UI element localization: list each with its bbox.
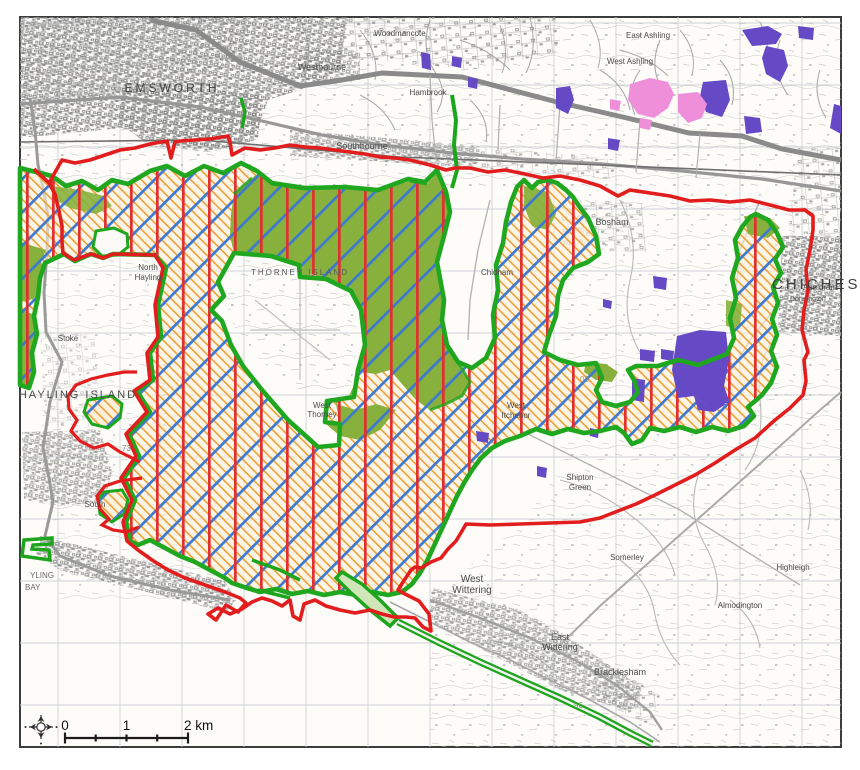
svg-text:West: West bbox=[313, 401, 332, 410]
svg-text:96: 96 bbox=[574, 701, 583, 710]
svg-text:East: East bbox=[551, 632, 570, 642]
svg-text:Southbourne: Southbourne bbox=[336, 141, 388, 151]
svg-text:Apuldram: Apuldram bbox=[803, 283, 838, 292]
svg-text:Thorney: Thorney bbox=[307, 410, 336, 419]
svg-text:Almodington: Almodington bbox=[718, 601, 762, 610]
svg-text:Chidham: Chidham bbox=[481, 268, 513, 277]
svg-text:Wittering: Wittering bbox=[542, 642, 578, 652]
svg-text:THORNEY ISLAND: THORNEY ISLAND bbox=[251, 268, 349, 277]
svg-text:73: 73 bbox=[122, 444, 131, 453]
svg-text:Bosham: Bosham bbox=[595, 217, 628, 227]
svg-text:Highleigh: Highleigh bbox=[776, 563, 809, 572]
svg-text:Wittering: Wittering bbox=[452, 585, 491, 596]
svg-text:HAYLING ISLAND: HAYLING ISLAND bbox=[19, 389, 137, 401]
svg-text:South: South bbox=[85, 500, 106, 509]
svg-text:Woodmancote: Woodmancote bbox=[374, 29, 426, 38]
svg-text:BAY: BAY bbox=[25, 583, 41, 592]
svg-text:Bracklesham: Bracklesham bbox=[594, 667, 646, 677]
svg-text:Westbourne: Westbourne bbox=[298, 62, 346, 72]
svg-text:West Ashling: West Ashling bbox=[607, 57, 653, 66]
svg-text:West: West bbox=[461, 574, 484, 585]
svg-text:North: North bbox=[138, 263, 158, 272]
svg-text:0: 0 bbox=[61, 718, 69, 733]
svg-text:YLING: YLING bbox=[30, 571, 54, 580]
svg-text:2 km: 2 km bbox=[184, 718, 213, 733]
svg-text:Hambrook: Hambrook bbox=[410, 88, 448, 97]
svg-text:EMSWORTH: EMSWORTH bbox=[124, 81, 219, 95]
svg-text:Itchenor: Itchenor bbox=[502, 411, 531, 420]
svg-text:Somerley: Somerley bbox=[610, 553, 644, 562]
svg-text:Hayling: Hayling bbox=[135, 273, 162, 282]
svg-text:Stoke: Stoke bbox=[58, 334, 79, 343]
svg-text:West: West bbox=[507, 401, 526, 410]
svg-text:03: 03 bbox=[580, 375, 589, 384]
svg-text:1: 1 bbox=[123, 718, 131, 733]
svg-text:East Ashling: East Ashling bbox=[626, 31, 670, 40]
svg-text:Green: Green bbox=[569, 483, 591, 492]
svg-text:Donnington: Donnington bbox=[790, 296, 826, 303]
svg-text:Shipton: Shipton bbox=[566, 473, 593, 482]
